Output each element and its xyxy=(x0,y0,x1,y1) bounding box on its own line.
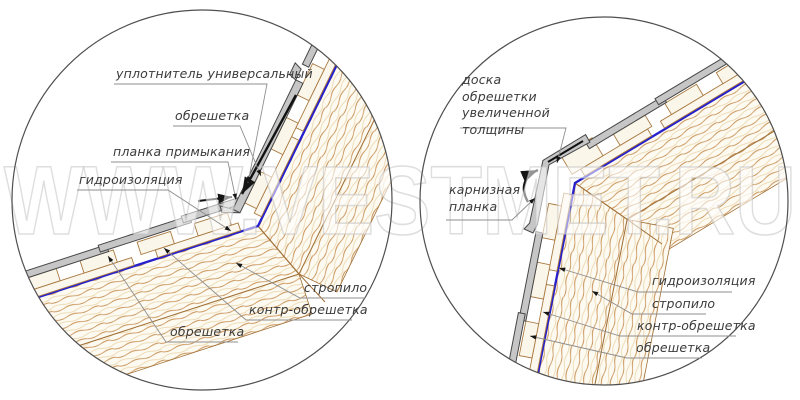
roof-detail-diagram: WWW.VESTMET.RU уплотнитель универсальный… xyxy=(0,0,800,400)
label-right-counter-lathing: контр-обрешетка xyxy=(637,318,756,333)
label-right-thick-board: доска обрешетки увеличенной толщины xyxy=(462,72,564,138)
label-left-abutment-strip: планка примыкания xyxy=(113,144,250,159)
label-left-sealant: уплотнитель универсальный xyxy=(116,66,313,81)
label-right-lathing: обрешетка xyxy=(636,340,710,355)
label-right-rafter: стропило xyxy=(652,296,715,311)
label-left-rafter: стропило xyxy=(304,280,367,295)
label-right-eaves-strip: карнизная планка xyxy=(449,182,523,215)
label-left-counter-lathing: контр-обрешетка xyxy=(249,302,368,317)
label-left-waterproofing: гидроизоляция xyxy=(79,172,183,187)
label-left-lathing-top: обрешетка xyxy=(175,108,249,123)
label-left-lathing-bottom: обрешетка xyxy=(170,324,244,339)
label-right-waterproofing: гидроизоляция xyxy=(652,273,756,288)
